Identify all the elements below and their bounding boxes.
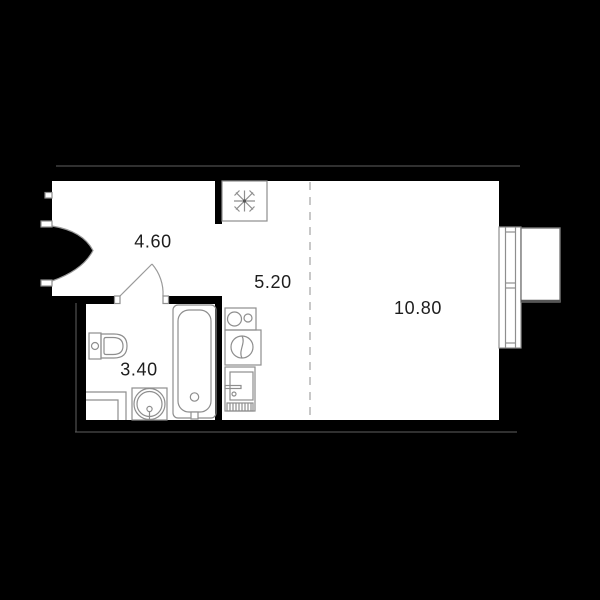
entrance-jamb-bottom (41, 280, 52, 286)
hallway-area-label: 4.60 (134, 232, 171, 252)
kitchen-area-label: 5.20 (254, 272, 291, 292)
ventilation-shaft-icon (222, 181, 267, 221)
entrance-jamb-top (41, 221, 52, 227)
floor-plan-canvas: 4.60 5.20 10.80 3.40 (0, 0, 600, 600)
balcony (521, 228, 560, 302)
door-jamb-right (163, 296, 169, 304)
bathroom-doorway (120, 296, 163, 304)
floor-plan: 4.60 5.20 10.80 3.40 (0, 0, 600, 600)
window (499, 227, 521, 348)
living-room-area-label: 10.80 (394, 298, 442, 318)
wall-joint-mark (45, 193, 52, 199)
bathroom-area-label: 3.40 (120, 360, 157, 380)
door-jamb-left (115, 296, 121, 304)
passage-floor (215, 224, 222, 296)
